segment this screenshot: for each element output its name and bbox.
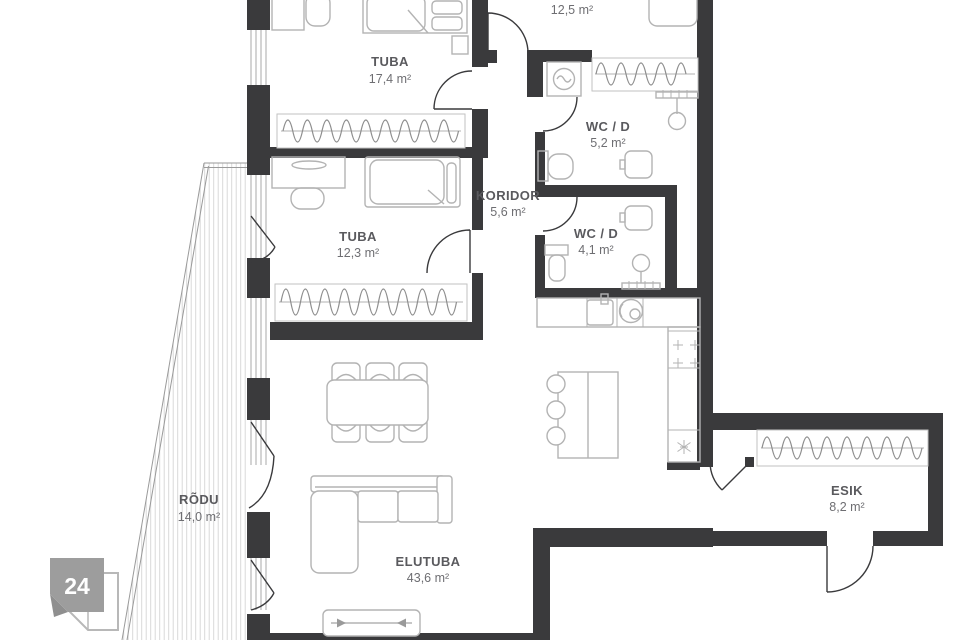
room-label-wc-2: WC / D: [574, 226, 618, 241]
wall-segment: [928, 430, 943, 546]
wall-segment: [527, 50, 592, 62]
door-arc: [427, 230, 470, 273]
wall-segment: [472, 273, 483, 322]
kitchen-island: [558, 372, 618, 458]
kitchen-counter: [537, 298, 700, 327]
dishwasher-icon: [620, 300, 643, 323]
living-room-furniture: [311, 363, 452, 636]
floor-plan-drawing: TUBA 17,4 m² 12,5 m² WC / D 5,2 m² KORID…: [0, 0, 960, 640]
wall-segment: [247, 512, 270, 558]
window: [247, 30, 270, 85]
bedroom-1-furniture: [272, 0, 468, 54]
area-label-wc-2: 4,1 m²: [578, 243, 613, 257]
radiator-icon: [592, 58, 698, 91]
double-bed-icon: [363, 0, 467, 33]
wall-segment: [533, 528, 713, 547]
dining-set: [327, 363, 428, 442]
washing-machine-icon: [547, 62, 581, 96]
bar-stool-icon: [547, 375, 565, 393]
balcony-door-window: [247, 175, 270, 258]
door-arc: [543, 197, 577, 231]
radiator-icon: [277, 114, 465, 148]
sink-icon: [620, 151, 652, 178]
wall-segment: [535, 235, 545, 293]
wall-segment: [873, 531, 943, 546]
room-label-tuba-1: TUBA: [371, 54, 409, 69]
balcony-hatch: [122, 163, 247, 640]
wall-segment: [247, 85, 270, 175]
bedroom-2-furniture: [272, 157, 460, 209]
room-label-wc-1: WC / D: [586, 119, 630, 134]
desk-icon: [272, 157, 345, 188]
door-arc: [434, 71, 472, 109]
window: [247, 298, 270, 378]
room-label-tuba-2: TUBA: [339, 229, 377, 244]
wall-segment: [247, 258, 270, 298]
wall-segment: [247, 0, 270, 30]
balcony-door-window: [247, 420, 270, 465]
wall-segment: [270, 322, 483, 340]
wall-segment: [472, 50, 497, 63]
area-label-elutuba: 43,6 m²: [407, 571, 449, 585]
door-arc: [543, 97, 577, 131]
fridge-icon: [678, 440, 691, 454]
wall-segment: [713, 413, 943, 430]
room-label-koridor: KORIDOR: [476, 188, 540, 203]
radiator-icon: [757, 430, 928, 466]
area-label-koridor: 5,6 m²: [490, 205, 525, 219]
sliding-sideboard-icon: [323, 610, 420, 636]
single-bed-icon: [365, 157, 460, 207]
door-arc: [488, 13, 528, 53]
wall-segment: [472, 109, 488, 158]
room-label-esik: ESIK: [831, 483, 863, 498]
sink-icon: [620, 206, 652, 230]
room-label-rodu: RÕDU: [179, 492, 219, 507]
wall-segment: [535, 185, 677, 197]
floor-number: 24: [64, 573, 90, 599]
wall-segment: [533, 547, 550, 640]
wall-segment: [667, 462, 700, 470]
area-label-rodu: 14,0 m²: [178, 510, 220, 524]
floor-number-badge: 24: [50, 558, 118, 630]
bar-stool-icon: [547, 401, 565, 419]
wall-segment: [665, 193, 677, 293]
shower-icon: [622, 255, 660, 290]
area-label-esik: 8,2 m²: [829, 500, 864, 514]
room-label-elutuba: ELUTUBA: [396, 554, 461, 569]
entrance-door-arc: [827, 546, 873, 592]
door-arc: [710, 462, 750, 490]
shower-icon: [656, 90, 698, 130]
kitchen-fixtures: [537, 294, 700, 462]
wardrobe-icon: [272, 0, 304, 30]
stove-icon: [673, 340, 700, 368]
bar-stool-icon: [547, 427, 565, 445]
area-label-tuba-2: 12,3 m²: [337, 246, 379, 260]
radiator-icon: [275, 284, 467, 321]
wall-segment: [247, 378, 270, 420]
chair-icon: [306, 0, 330, 26]
chair-icon: [291, 188, 324, 209]
wall-segment: [527, 62, 543, 97]
area-label-tuba-1: 17,4 m²: [369, 72, 411, 86]
wall-segment: [700, 531, 827, 546]
area-label-room-12-5: 12,5 m²: [551, 3, 593, 17]
area-label-wc-1: 5,2 m²: [590, 136, 625, 150]
table-icon: [649, 0, 697, 26]
toilet-icon: [545, 245, 568, 281]
dining-table-icon: [327, 380, 428, 425]
floor-plan: TUBA 17,4 m² 12,5 m² WC / D 5,2 m² KORID…: [0, 0, 960, 640]
balcony-terrace: [122, 163, 247, 640]
nightstand-icon: [452, 36, 468, 54]
